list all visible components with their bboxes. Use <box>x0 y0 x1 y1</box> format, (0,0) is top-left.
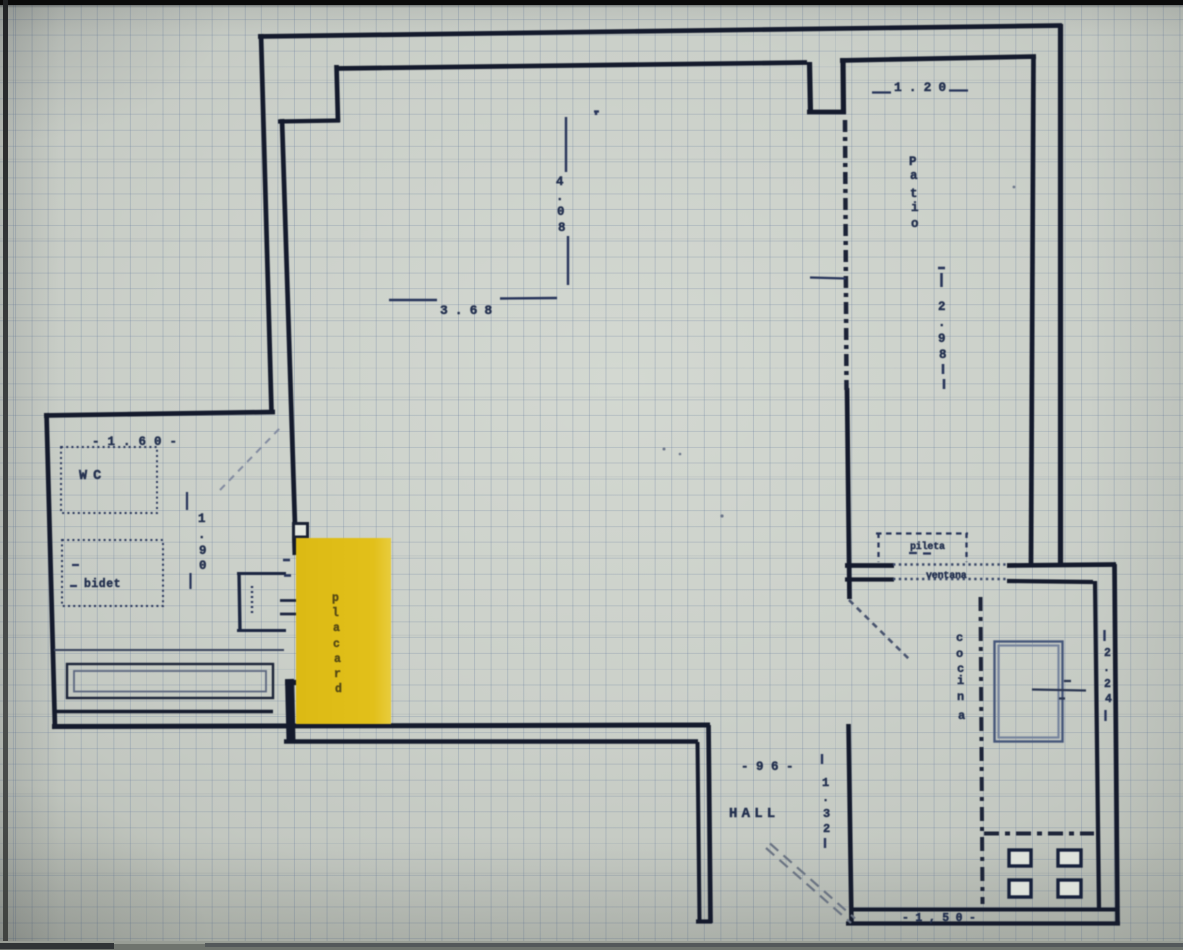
svg-text:o: o <box>911 217 919 231</box>
svg-text:a: a <box>958 709 965 723</box>
svg-text:3: 3 <box>823 807 830 821</box>
svg-text:c: c <box>956 631 963 645</box>
svg-text:4: 4 <box>556 175 564 189</box>
svg-text:8: 8 <box>558 221 566 235</box>
svg-text:.: . <box>938 316 946 330</box>
svg-text:a: a <box>910 169 918 183</box>
svg-text:9: 9 <box>199 544 207 558</box>
svg-text:4: 4 <box>1105 693 1112 706</box>
svg-text:8: 8 <box>939 348 947 362</box>
svg-text:P: P <box>909 155 917 169</box>
svg-text:i: i <box>957 674 964 688</box>
svg-text:0: 0 <box>199 559 207 573</box>
svg-text:-96-: -96- <box>741 760 801 774</box>
svg-text:d: d <box>335 683 342 696</box>
svg-text:c: c <box>333 638 340 651</box>
svg-text:a: a <box>334 653 341 666</box>
svg-text:.: . <box>198 528 206 542</box>
svg-text:.: . <box>556 190 564 204</box>
svg-text:WC: WC <box>79 469 107 484</box>
svg-text:0: 0 <box>557 205 565 219</box>
svg-text:HALL: HALL <box>729 806 779 822</box>
svg-text:2: 2 <box>823 822 830 836</box>
svg-text:p: p <box>332 592 339 605</box>
svg-text:i: i <box>911 201 919 215</box>
svg-text:pileta: pileta <box>910 541 945 553</box>
svg-text:t: t <box>910 187 918 201</box>
svg-text:bidet: bidet <box>84 578 121 591</box>
svg-text:-1,50-: -1,50- <box>902 912 982 925</box>
svg-text:1: 1 <box>822 776 829 790</box>
svg-text:2: 2 <box>938 300 946 314</box>
svg-text:1: 1 <box>198 512 206 526</box>
svg-text:1.20: 1.20 <box>894 80 953 95</box>
svg-text:.: . <box>1103 662 1110 675</box>
svg-text:r: r <box>334 668 341 681</box>
svg-text:l: l <box>332 607 339 620</box>
svg-text:.: . <box>822 791 829 805</box>
svg-text:3.68: 3.68 <box>440 303 499 318</box>
svg-text:2: 2 <box>1104 647 1111 660</box>
svg-text:a: a <box>333 622 340 635</box>
svg-text:-1.60-: -1.60- <box>92 435 185 449</box>
svg-text:ventana: ventana <box>926 571 967 582</box>
svg-text:n: n <box>957 690 964 704</box>
svg-text:9: 9 <box>938 332 946 346</box>
svg-text:o: o <box>956 647 963 661</box>
svg-text:2: 2 <box>1104 678 1111 691</box>
